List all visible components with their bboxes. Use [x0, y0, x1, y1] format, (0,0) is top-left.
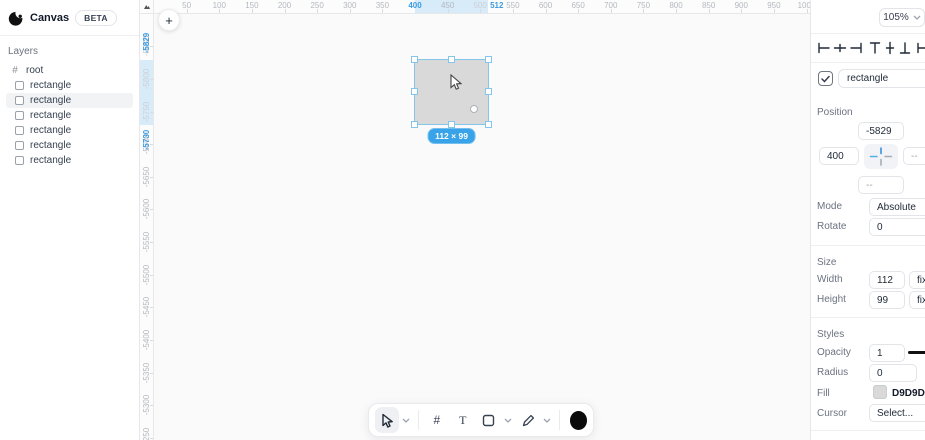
- rectangle-layer-icon: [15, 111, 24, 120]
- ruler-tick: [150, 79, 154, 80]
- ruler-tick: [807, 9, 808, 13]
- ruler-tick: [513, 9, 514, 13]
- inspector-panel: 105% rectangle Position -5829: [810, 0, 925, 440]
- rectangle-layer-icon: [15, 141, 24, 150]
- divider: [811, 245, 925, 246]
- constraint-anchor-widget[interactable]: [864, 144, 898, 169]
- pen-tool-chevron-icon[interactable]: [542, 410, 553, 430]
- resize-handle-middle-right[interactable]: [485, 88, 492, 95]
- layer-name-input[interactable]: rectangle: [838, 69, 925, 88]
- horizontal-ruler: 5010015020025030035045050055060065070075…: [154, 0, 810, 14]
- rotate-input[interactable]: 0: [869, 218, 925, 236]
- text-tool-button[interactable]: T: [451, 407, 475, 433]
- ruler-tick: [150, 275, 154, 276]
- rectangle-layer-icon: [15, 96, 24, 105]
- mode-label: Mode: [817, 201, 842, 212]
- stroke-color-swatch-button[interactable]: [570, 411, 587, 430]
- align-right-icon[interactable]: [849, 41, 863, 55]
- ruler-origin-icon: [143, 3, 151, 10]
- layer-row-rectangle[interactable]: rectangle: [6, 78, 133, 93]
- layers-panel-title: Layers: [8, 46, 131, 57]
- height-label: Height: [817, 294, 846, 305]
- ruler-tick: [448, 9, 449, 13]
- layers-sidebar: Canvas BETA Layers # root rectanglerecta…: [0, 0, 140, 440]
- resize-handle-middle-left[interactable]: [411, 88, 418, 95]
- fill-label: Fill: [817, 388, 830, 399]
- rectangle-layer-icon: [15, 126, 24, 135]
- ruler-tick: [150, 112, 154, 113]
- width-label: Width: [817, 274, 843, 285]
- layer-row-rectangle[interactable]: rectangle: [6, 153, 133, 168]
- frame-icon: #: [10, 65, 20, 76]
- text-tool-icon: T: [459, 413, 466, 428]
- chevron-down-icon: [913, 15, 921, 20]
- sidebar-header: Canvas BETA: [0, 0, 139, 36]
- ruler-tick: [578, 9, 579, 13]
- ruler-tick: [150, 405, 154, 406]
- beta-badge: BETA: [75, 10, 117, 26]
- layer-row-rectangle[interactable]: rectangle: [6, 138, 133, 153]
- ruler-tick: [709, 9, 710, 13]
- ruler-tick: [150, 307, 154, 308]
- ruler-selection-start-label: 400: [400, 1, 430, 10]
- anchor-cross-icon: [867, 146, 895, 167]
- ruler-tick: [150, 340, 154, 341]
- ruler-tick: [546, 9, 547, 13]
- checkmark-icon: [821, 75, 830, 83]
- align-top-icon[interactable]: [868, 41, 882, 55]
- align-bottom-icon[interactable]: [898, 41, 912, 55]
- ruler-tick: [219, 9, 220, 13]
- ruler-selection-end-label: -5730: [142, 123, 152, 157]
- canvas-viewport[interactable]: 5010015020025030035045050055060065070075…: [140, 0, 810, 440]
- pen-icon: [521, 413, 535, 427]
- layer-visible-checkbox[interactable]: [818, 71, 833, 86]
- ruler-tick: [187, 9, 188, 13]
- resize-handle-bottom-left[interactable]: [411, 121, 418, 128]
- canvas-app: Canvas BETA Layers # root rectanglerecta…: [0, 0, 925, 440]
- ruler-selection-end-label: 512: [490, 1, 503, 10]
- divider: [811, 33, 925, 34]
- ruler-tick: [350, 9, 351, 13]
- position-section-title: Position: [817, 107, 853, 118]
- resize-handle-bottom-right[interactable]: [485, 121, 492, 128]
- ruler-tick: [150, 373, 154, 374]
- layer-row-rectangle[interactable]: rectangle: [6, 93, 133, 108]
- fill-hex-value: D9D9D9: [892, 388, 925, 399]
- radius-input[interactable]: 0: [869, 364, 917, 382]
- layer-label: rectangle: [30, 155, 71, 166]
- divider: [811, 430, 925, 431]
- width-input[interactable]: 112: [869, 271, 905, 289]
- divider: [811, 62, 925, 63]
- pen-tool-button[interactable]: [516, 407, 540, 433]
- rectangle-tool-chevron-icon[interactable]: [503, 410, 514, 430]
- fill-color-swatch[interactable]: [873, 385, 887, 399]
- layer-label: rectangle: [30, 110, 71, 121]
- rectangle-layer-icon: [15, 156, 24, 165]
- position-x-input[interactable]: 400: [819, 147, 859, 165]
- width-mode-select[interactable]: fixed: [909, 271, 925, 289]
- toolbar-divider: [418, 410, 419, 430]
- align-left-icon[interactable]: [817, 41, 831, 55]
- ruler-tick: [480, 9, 481, 13]
- height-input[interactable]: 99: [869, 291, 905, 309]
- position-bottom-input[interactable]: --: [858, 176, 904, 194]
- layer-label: rectangle: [30, 95, 71, 106]
- rectangle-tool-icon: [482, 414, 495, 427]
- ruler-tick: [285, 9, 286, 13]
- ruler-tick: [611, 9, 612, 13]
- ruler-tick: [317, 9, 318, 13]
- layer-label: rectangle: [30, 80, 71, 91]
- app-logo-icon: [8, 10, 24, 26]
- layer-list: rectanglerectanglerectanglerectanglerect…: [0, 78, 139, 168]
- zoom-level-dropdown[interactable]: 105%: [879, 8, 925, 27]
- app-title: Canvas: [30, 12, 69, 24]
- layer-row-root[interactable]: # root: [6, 63, 133, 78]
- opacity-slider[interactable]: [908, 351, 925, 354]
- resize-handle-bottom-middle[interactable]: [448, 121, 455, 128]
- size-section-title: Size: [817, 257, 836, 268]
- align-center-horizontal-icon[interactable]: [833, 41, 847, 55]
- rectangle-layer-icon: [15, 81, 24, 90]
- bottom-toolbar: # T: [368, 403, 594, 437]
- position-y-input[interactable]: -5829: [858, 122, 904, 140]
- radius-label: Radius: [817, 367, 848, 378]
- align-middle-vertical-icon[interactable]: [883, 41, 897, 55]
- ruler-origin-corner[interactable]: [140, 0, 154, 14]
- vertical-ruler: -5850-5800-5750-5700-5650-5600-5550-5500…: [140, 14, 154, 440]
- selection-size-badge: 112 × 99: [427, 128, 476, 144]
- styles-section-title: Styles: [817, 329, 844, 340]
- ruler-selection-start-label: -5829: [142, 26, 152, 60]
- ruler-tick: [150, 242, 154, 243]
- resize-handle-top-left[interactable]: [411, 56, 418, 63]
- ruler-tick: [774, 9, 775, 13]
- ruler-tick: [643, 9, 644, 13]
- ruler-tick: [150, 209, 154, 210]
- cursor-select[interactable]: Select...: [869, 404, 925, 422]
- zoom-level-value: 105%: [883, 12, 909, 23]
- rectangle-tool-button[interactable]: [477, 407, 501, 433]
- resize-handle-top-right[interactable]: [485, 56, 492, 63]
- layer-label: rectangle: [30, 125, 71, 136]
- opacity-label: Opacity: [817, 347, 851, 358]
- height-mode-select[interactable]: fixed: [909, 291, 925, 309]
- selected-rectangle-shape[interactable]: 112 × 99: [415, 60, 488, 124]
- select-tool-chevron-icon[interactable]: [401, 410, 412, 430]
- layer-row-rectangle[interactable]: rectangle: [6, 123, 133, 138]
- ruler-tick: [150, 438, 154, 439]
- select-tool-button[interactable]: [375, 407, 399, 433]
- ruler-tick: [252, 9, 253, 13]
- layer-label: root: [26, 65, 43, 76]
- rotate-label: Rotate: [817, 221, 846, 232]
- frame-tool-icon: #: [433, 413, 440, 427]
- layer-row-rectangle[interactable]: rectangle: [6, 108, 133, 123]
- resize-handle-top-middle[interactable]: [448, 56, 455, 63]
- add-button[interactable]: +: [158, 9, 180, 31]
- opacity-input[interactable]: 1: [869, 344, 905, 362]
- corner-radius-handle[interactable]: [470, 105, 478, 113]
- toolbar-divider: [559, 410, 560, 430]
- position-right-input[interactable]: --: [903, 147, 925, 165]
- distribute-horizontal-icon[interactable]: [916, 41, 925, 55]
- layer-label: rectangle: [30, 140, 71, 151]
- ruler-tick: [150, 177, 154, 178]
- divider: [811, 317, 925, 318]
- ruler-tick: [382, 9, 383, 13]
- cursor-arrow-icon: [380, 413, 394, 428]
- ruler-tick: [676, 9, 677, 13]
- frame-tool-button[interactable]: #: [425, 407, 449, 433]
- cursor-label: Cursor: [817, 408, 847, 419]
- mode-select[interactable]: Absolute: [869, 198, 925, 216]
- mouse-cursor-icon: [449, 74, 462, 91]
- ruler-tick: [741, 9, 742, 13]
